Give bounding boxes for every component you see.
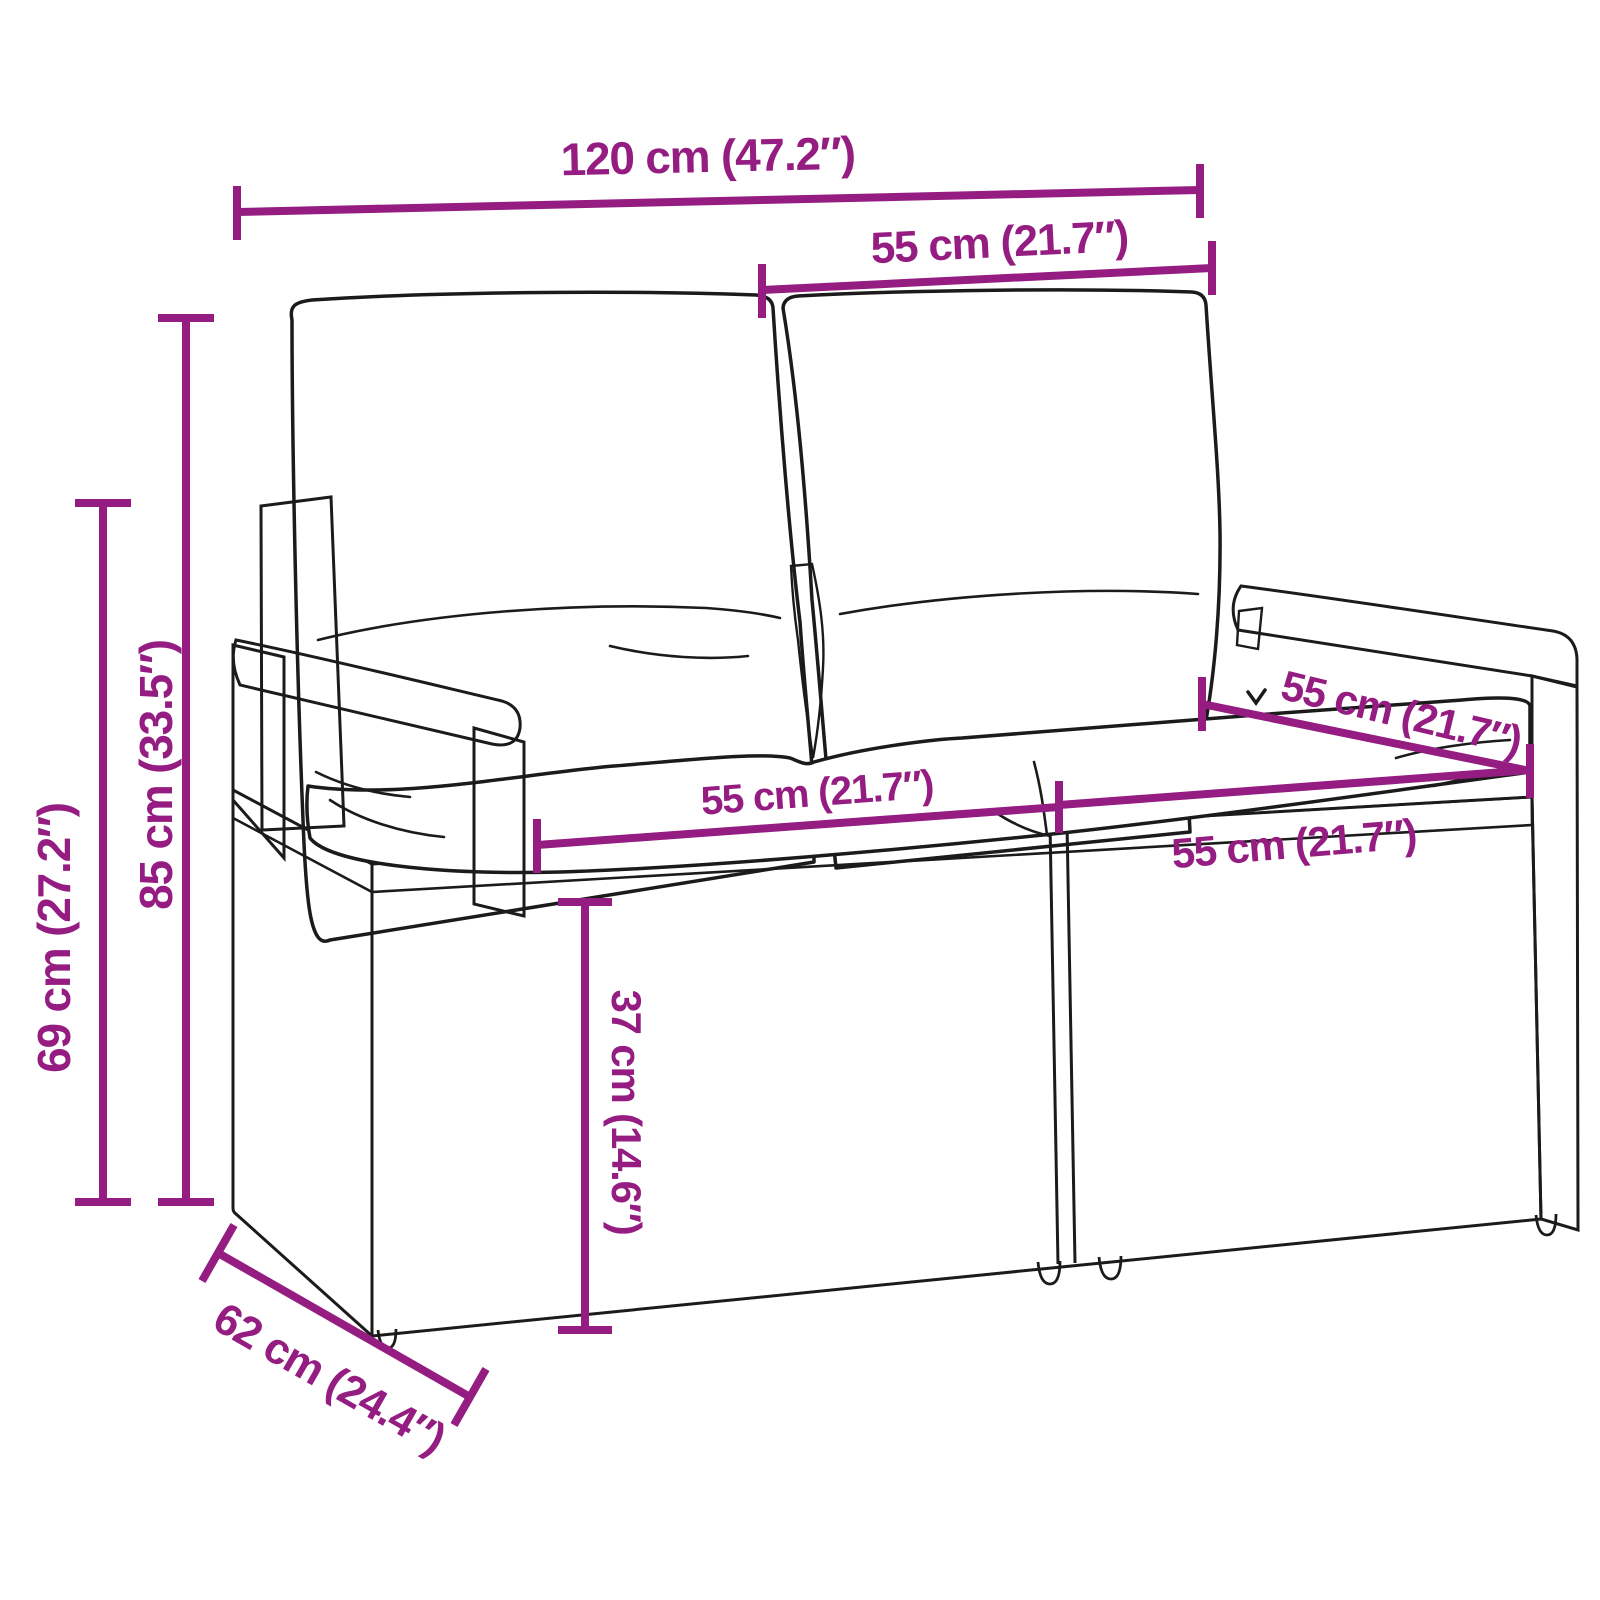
base-right-column [1532,676,1578,1230]
bench-foot [1038,1261,1060,1284]
bench-diagram-canvas: 120 cm (47.2″) 55 cm (21.7″) 85 cm (33.5… [0,0,1600,1600]
dimension-seat-height: 37 cm (14.6″) [558,902,650,1330]
dim-tick [454,1369,486,1425]
dim-label-armrest-height: 69 cm (27.2″) [28,803,80,1073]
dim-label-seat-height: 37 cm (14.6″) [603,990,650,1235]
module-seam-line [1050,824,1058,1264]
dim-label-total-height: 85 cm (33.5″) [130,640,182,910]
product-dimension-diagram: 120 cm (47.2″) 55 cm (21.7″) 85 cm (33.5… [0,0,1600,1600]
dim-label-backrest-width: 55 cm (21.7″) [870,212,1129,274]
check-mark-artifact [1248,690,1265,703]
dimension-armrest-height: 69 cm (27.2″) [28,503,131,1202]
module-seam-line [1067,823,1075,1263]
back-post-right [1237,608,1262,649]
dimension-total-height: 85 cm (33.5″) [130,318,214,1202]
dimension-overall-depth: 62 cm (24.4″) [202,1225,486,1463]
dim-tick [202,1225,234,1281]
dim-label-seat-width-right: 55 cm (21.7″) [1170,810,1418,877]
bench-foot [1099,1256,1121,1279]
dim-label-overall-width: 120 cm (47.2″) [560,127,855,186]
bench-foot [1536,1214,1556,1235]
armrest-left-edge-strip [233,645,284,858]
